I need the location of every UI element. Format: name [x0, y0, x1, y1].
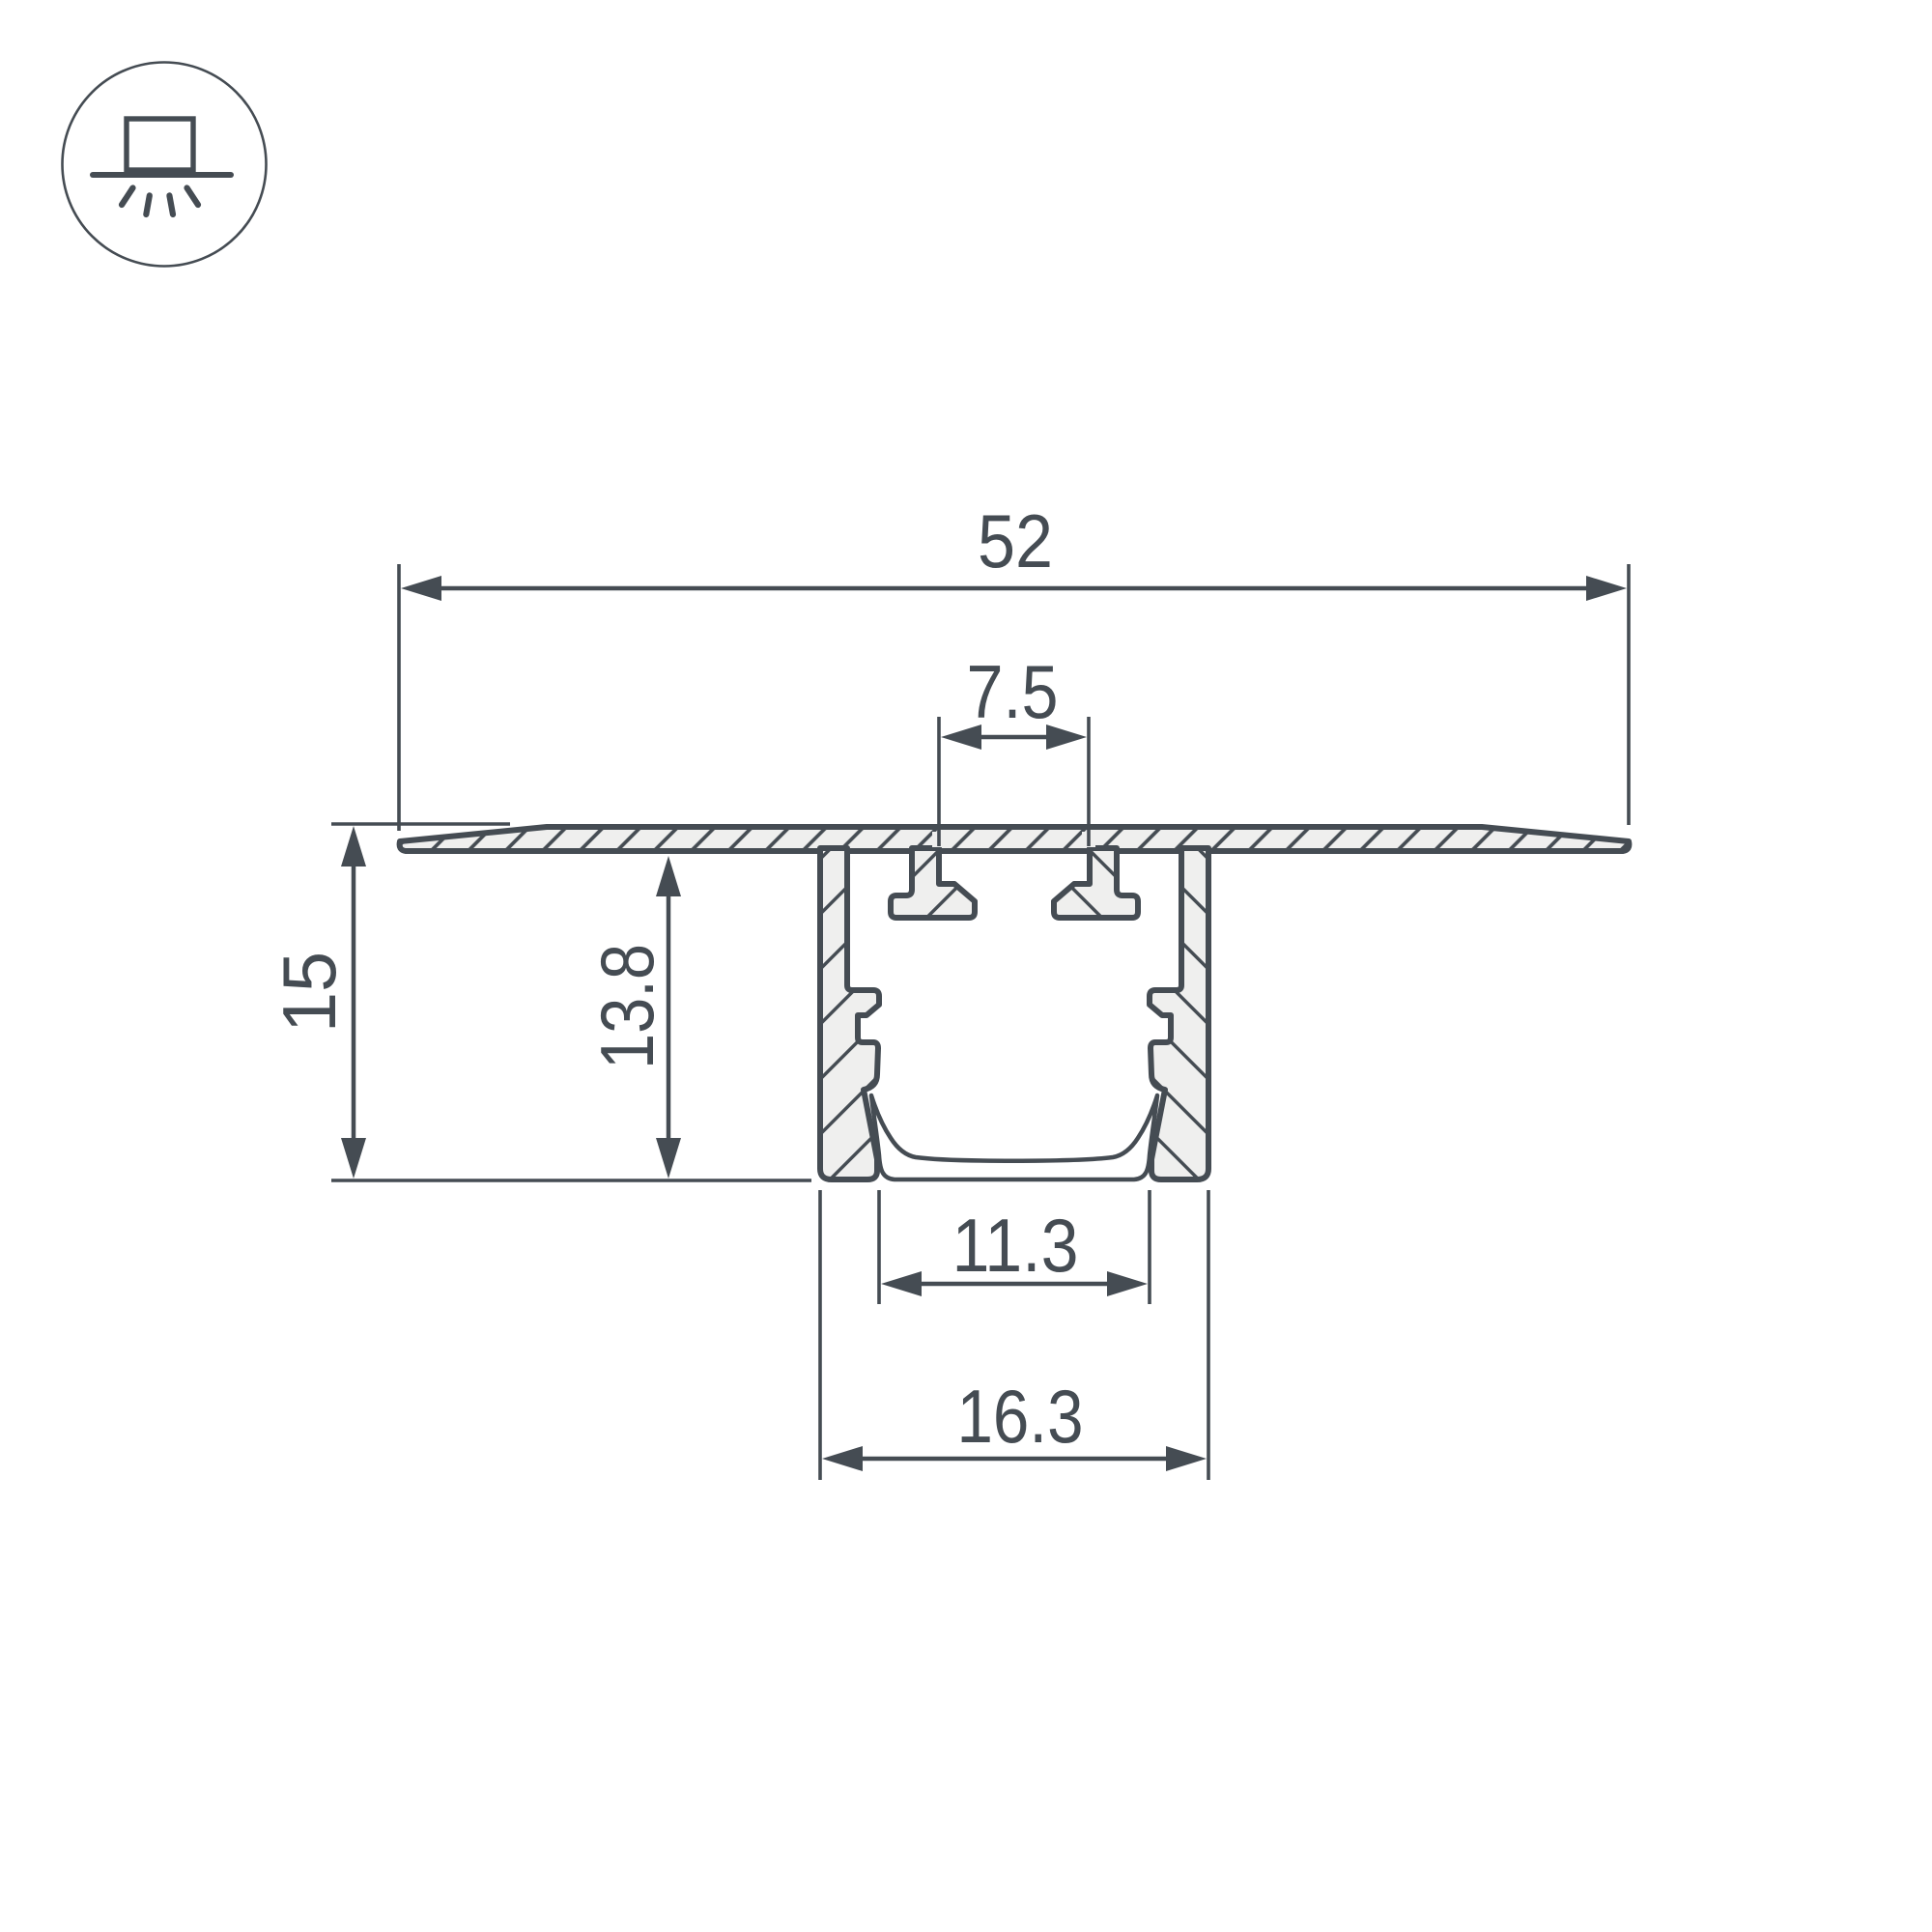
svg-text:16.3: 16.3: [957, 1374, 1084, 1459]
svg-text:13.8: 13.8: [584, 944, 669, 1069]
svg-text:52: 52: [978, 498, 1053, 583]
svg-text:15: 15: [267, 952, 352, 1033]
svg-text:7.5: 7.5: [967, 649, 1059, 734]
svg-text:11.3: 11.3: [952, 1203, 1079, 1288]
